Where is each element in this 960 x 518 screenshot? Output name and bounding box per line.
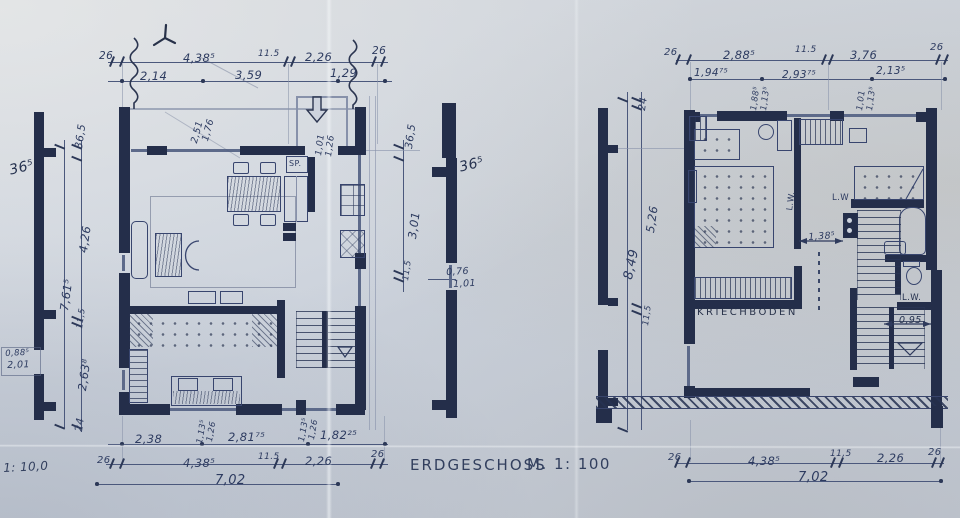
dim-label: 1,29 <box>330 68 357 80</box>
party-wall-tab <box>44 310 56 319</box>
toilet-bowl <box>906 267 922 285</box>
dim-label: 2,88⁵ <box>723 50 755 62</box>
dim-label: 11,5 <box>76 308 87 330</box>
sofa <box>131 221 148 279</box>
dim-label: 26 <box>930 43 944 53</box>
toilet-tank <box>903 261 920 267</box>
dim-label: 1,26 <box>308 419 320 441</box>
window-line <box>687 346 690 386</box>
wall-segment <box>236 404 282 415</box>
dim-label: 26 <box>372 46 386 57</box>
dim-label: 2,26 <box>877 453 904 465</box>
label-lw: L.W. <box>902 294 921 303</box>
interior-wall <box>308 157 315 212</box>
wall-segment <box>926 108 937 270</box>
dining-table <box>227 176 281 212</box>
party-wall <box>446 290 457 418</box>
dim-label: 3,01 <box>407 211 422 240</box>
boundary-line <box>369 96 370 430</box>
window-line <box>122 255 125 271</box>
dimension-line <box>641 92 642 430</box>
kitchen-cabinet <box>340 230 365 258</box>
extension-line <box>828 62 829 110</box>
dim-label: 5,26 <box>645 205 660 234</box>
entry-arrow-icon <box>307 97 327 122</box>
dim-label: 26 <box>664 48 678 58</box>
hatched-block <box>252 314 277 347</box>
dimension-dot <box>760 77 764 81</box>
pillow <box>213 378 233 391</box>
dim-label: 1,13⁵ <box>866 86 878 111</box>
party-wall-tab <box>44 148 56 157</box>
dim-label: 1,26 <box>325 135 337 158</box>
dim-label: 2,14 <box>140 71 167 83</box>
pillow <box>178 378 198 391</box>
wall-segment <box>853 377 879 387</box>
extension-line <box>377 64 378 144</box>
stove <box>283 233 296 241</box>
bed <box>854 166 924 200</box>
flue-vent <box>847 218 852 223</box>
dim-label: 1,26 <box>206 421 218 443</box>
wall-thickness-label: 36⁵ <box>8 158 35 178</box>
extension-line <box>288 64 289 144</box>
dim-label: 1,94⁷⁵ <box>694 68 728 79</box>
plant-icon <box>154 25 175 45</box>
stool <box>758 124 774 140</box>
party-wall <box>34 112 44 350</box>
window-line <box>358 269 361 306</box>
label-sink: SP. <box>289 160 301 168</box>
dim-label: 24 <box>638 97 650 112</box>
dim-total-label: 7,02 <box>215 474 246 487</box>
dining-chair <box>260 162 276 174</box>
dimension-line <box>688 79 946 80</box>
flue-vent <box>847 228 852 233</box>
extension-line <box>122 416 123 462</box>
party-wall-tab <box>608 298 618 306</box>
interior-wall <box>794 266 802 303</box>
dimension-dot <box>939 479 943 483</box>
hatched-wall-strip <box>596 396 948 409</box>
dim-label: 4,38⁵ <box>183 458 215 470</box>
dim-label: 1,01 <box>453 279 476 290</box>
hedge-line <box>130 38 138 109</box>
dim-label: 26 <box>371 450 385 460</box>
wall-pier <box>296 400 306 415</box>
dim-label: 11.5 <box>258 453 280 462</box>
dining-chair <box>260 214 276 226</box>
dim-label: 0,95 <box>899 316 922 326</box>
wall-segment <box>931 270 942 412</box>
dashed-line <box>818 252 820 314</box>
hatched-block <box>129 314 153 347</box>
dimension-dot <box>95 482 99 486</box>
party-wall <box>598 108 608 305</box>
dim-label: 36,5 <box>74 123 88 149</box>
kitchen-cabinet <box>340 184 365 216</box>
interior-wall <box>119 306 279 314</box>
drawing-scale: M. 1: 100 <box>527 457 611 472</box>
stair-wall <box>850 288 857 370</box>
dim-label: 2,26 <box>305 456 332 468</box>
stair-rail <box>889 307 894 369</box>
paper-crease <box>574 0 579 518</box>
wall-segment <box>147 146 167 155</box>
party-wall-tab <box>432 400 446 410</box>
dim-label: 7,61⁵ <box>59 278 75 312</box>
window-line <box>167 149 240 152</box>
dim-label: 1,38⁵ <box>808 231 836 242</box>
stairs <box>857 210 901 300</box>
cupboard <box>188 291 216 304</box>
dimension-dot <box>870 77 874 81</box>
blueprint-sheet: 26 4,38⁵ 11.5 2,26 26 2,14 3,59 1,29 36,… <box>0 0 960 518</box>
interior-wall <box>277 300 285 378</box>
dim-label: 4,38⁵ <box>183 53 215 65</box>
dim-total-label: 7,02 <box>798 471 829 484</box>
dim-label: 26 <box>97 456 111 466</box>
hatched-block <box>688 170 697 203</box>
window-line <box>131 149 147 152</box>
window-line <box>122 370 125 390</box>
bed <box>694 129 740 160</box>
dim-label: 1,82²⁵ <box>320 430 357 442</box>
wall-segment <box>336 404 365 415</box>
dim-label: 11.5 <box>258 50 280 59</box>
dim-label: 11,5 <box>402 260 413 282</box>
dimension-dot <box>336 482 340 486</box>
dim-label: 11.5 <box>795 46 817 55</box>
wall-segment <box>119 107 130 253</box>
flue <box>843 213 858 238</box>
dim-label: 1,13⁵ <box>760 86 772 111</box>
dimension-dot <box>120 79 124 83</box>
porch-line <box>296 96 298 146</box>
dim-label: 2,26 <box>305 52 332 64</box>
dim-label: 0,88⁵ <box>5 349 30 359</box>
wall-pier <box>596 409 612 423</box>
party-wall <box>34 374 44 420</box>
dim-label: 26 <box>99 51 113 62</box>
dimension-dot <box>383 79 387 83</box>
shelf <box>129 349 148 403</box>
dining-chair <box>233 214 249 226</box>
cupboard <box>220 291 243 304</box>
storage-rack <box>694 277 792 299</box>
dim-label: 36,5 <box>404 123 418 149</box>
extension-line <box>690 62 691 110</box>
dim-label: 2,93⁷⁵ <box>782 70 816 81</box>
dim-label: 11,5 <box>642 305 653 327</box>
cabinet <box>777 120 792 151</box>
bed-mattress <box>173 391 240 404</box>
party-wall <box>442 103 456 158</box>
dim-label: 2,13⁵ <box>876 66 906 77</box>
window-line <box>844 114 916 117</box>
porch-line <box>346 96 348 146</box>
wall-segment <box>355 107 366 155</box>
dim-label: 2,38 <box>135 434 162 446</box>
dimension-line <box>676 60 948 61</box>
dimension-dot <box>688 77 692 81</box>
boundary-line <box>375 96 376 430</box>
dimension-line <box>106 464 388 465</box>
wall-thickness-label: 36⁵ <box>458 155 485 175</box>
dim-label: 8,49 <box>622 248 641 281</box>
dim-label: 11,5 <box>830 450 852 459</box>
bathtub <box>899 207 926 255</box>
label-lw: L.W <box>832 194 849 203</box>
dim-label: 26 <box>928 448 942 458</box>
dimension-line <box>108 62 388 63</box>
wall-segment <box>126 404 170 415</box>
closet <box>799 119 843 145</box>
party-wall-tab <box>44 402 56 411</box>
room-label-kriechboden: KRIECHBODEN <box>697 308 798 318</box>
dimension-dot <box>201 79 205 83</box>
stove <box>283 223 296 231</box>
dim-label: 2,01 <box>7 360 30 370</box>
porch-line <box>296 96 346 98</box>
dim-label: 3,76 <box>850 50 877 62</box>
dim-label: 2,63⁸ <box>77 358 93 392</box>
counter-line <box>296 176 297 222</box>
dining-chair <box>233 162 249 174</box>
extension-line <box>941 62 942 110</box>
hatched-block <box>694 226 716 248</box>
dim-label: 4,26 <box>78 225 93 254</box>
dim-label: 24 <box>74 417 86 432</box>
window-line <box>170 408 236 411</box>
desk <box>155 233 182 277</box>
dimension-dot <box>943 77 947 81</box>
side-table <box>849 128 867 143</box>
wall-segment <box>240 146 305 155</box>
window-line <box>787 114 830 117</box>
party-wall-tab <box>608 145 618 153</box>
dim-label: 0,76 <box>446 267 469 278</box>
dim-label: 3,59 <box>235 70 262 82</box>
dimension-dot <box>687 479 691 483</box>
extension-line <box>690 420 691 462</box>
dim-label: 26 <box>668 453 682 463</box>
wall-pier <box>931 406 943 428</box>
extension-line <box>610 148 684 149</box>
scale-note: 1: 10,0 <box>3 460 49 474</box>
party-wall <box>446 158 457 263</box>
dim-label: 2,81⁷⁵ <box>228 432 265 444</box>
party-wall-tab <box>432 167 446 177</box>
arrowhead-icon <box>835 238 843 244</box>
dim-label: 4,38⁵ <box>748 456 780 468</box>
